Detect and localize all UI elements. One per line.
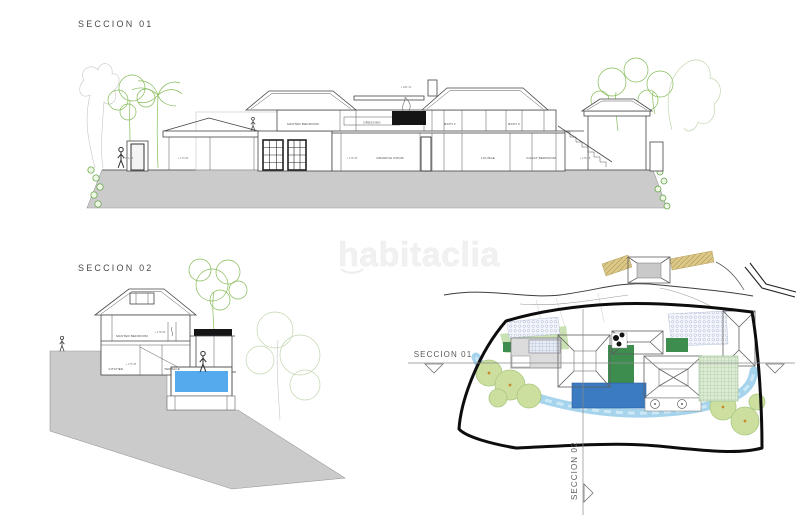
- right-parapet: [650, 142, 663, 171]
- pool-base: [167, 396, 235, 410]
- level-mark: + 175.35: [347, 156, 358, 160]
- level-mark: + 175.35: [126, 362, 137, 366]
- section-marker-icon: [584, 484, 593, 502]
- level-mark: + 175.35: [580, 156, 591, 160]
- plan-section01-label: SECCION 01: [414, 350, 473, 359]
- roof-skylight: [130, 293, 154, 304]
- section-marker-icon: [766, 364, 784, 373]
- plan-left-building: [511, 338, 561, 368]
- section-marker-icon: [425, 364, 443, 373]
- clerestory-roof: [354, 96, 424, 100]
- level-mark: + 181.10: [401, 85, 412, 89]
- room-label: GUEST BEDROOM: [526, 156, 556, 160]
- room-label: BATH 3: [508, 122, 520, 126]
- level-mark: + 178.30: [155, 330, 166, 334]
- room-label: MASTER BEDROOM: [287, 122, 319, 126]
- section-01-drawing: SECCION 01: [78, 19, 720, 209]
- architectural-drawing: habitaclia SECCION 01: [0, 0, 800, 515]
- fireplace: [392, 111, 426, 125]
- room-label: DRESSING: [363, 121, 381, 125]
- plan-south-roof: [644, 356, 702, 398]
- plan-terrace: [645, 398, 701, 411]
- driveway-ramp-right: [670, 251, 714, 270]
- level-mark: + 174.05: [178, 156, 189, 160]
- room-label: BATH 2: [444, 122, 456, 126]
- room-label: TERRACE: [164, 367, 180, 371]
- trees-right: [591, 58, 720, 131]
- plan-section02-label: SECCION 02: [570, 441, 579, 500]
- driveway-ramp-left: [602, 255, 632, 276]
- tree-above-house: [189, 259, 247, 330]
- tree-right-faint: [246, 312, 320, 420]
- carport-slab: [163, 131, 260, 137]
- gatehouse-roof: [628, 257, 670, 283]
- annex-planter: [194, 329, 232, 336]
- room-label: DRAWING ROOM: [376, 156, 403, 160]
- ground-section01: [87, 170, 667, 208]
- plan-sheet: habitaclia SECCION 01: [0, 0, 800, 515]
- carport-posts: [169, 137, 254, 170]
- lawn-patch: [666, 338, 688, 352]
- carport-gable: [164, 118, 258, 131]
- section-02-drawing: SECCION 02: [50, 259, 345, 489]
- staircase: [564, 132, 606, 167]
- lower-floor: [332, 133, 565, 171]
- pavilion-beam: [584, 111, 650, 116]
- plan-central-roof: [558, 335, 610, 387]
- level-mark: + 174.05: [123, 156, 134, 160]
- site-plan: SECCION 01 SECCION 02: [408, 251, 796, 515]
- road-line: [444, 284, 753, 296]
- person-figure: [60, 336, 65, 351]
- entrance-walls: [745, 263, 796, 297]
- habitaclia-watermark: habitaclia: [338, 236, 500, 274]
- section-01-title: SECCION 01: [78, 19, 154, 29]
- room-label: MASTER BEDROOM: [116, 334, 148, 338]
- entry-path: [716, 262, 744, 290]
- room-label: KITCHEN: [109, 367, 124, 371]
- center-door: [421, 137, 431, 171]
- pool-water: [175, 371, 228, 392]
- chimney: [428, 80, 437, 96]
- roof-right: [422, 88, 548, 110]
- person-figure: [251, 117, 255, 130]
- room-label: LOUNGE: [481, 156, 495, 160]
- section-02-title: SECCION 02: [78, 263, 154, 273]
